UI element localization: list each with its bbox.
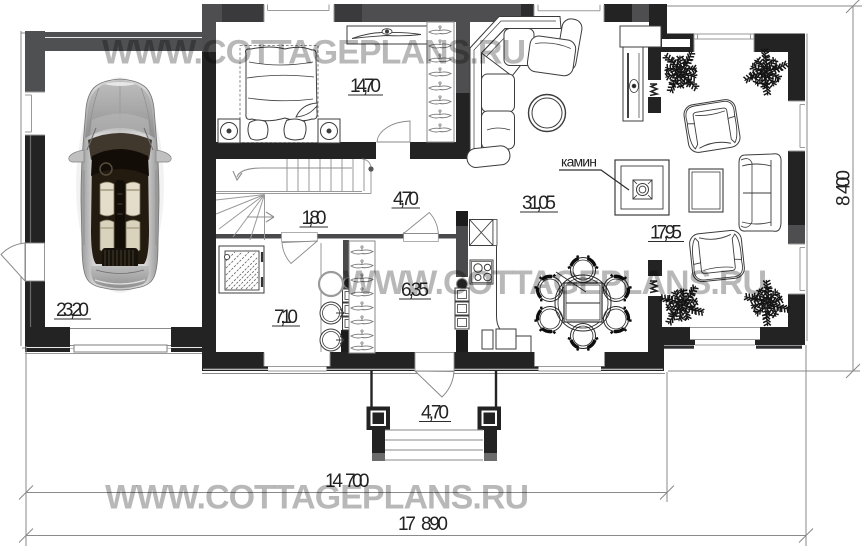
svg-text:7,10: 7,10 [274, 307, 298, 328]
svg-text:17: 17 [398, 514, 416, 535]
svg-text:8: 8 [834, 195, 855, 206]
svg-text:WWW.COTTAGEPLANS.RU: WWW.COTTAGEPLANS.RU [343, 264, 767, 302]
svg-text:4,70: 4,70 [393, 189, 419, 210]
svg-text:1,80: 1,80 [302, 208, 327, 229]
svg-text:23,20: 23,20 [56, 300, 89, 321]
svg-text:400: 400 [834, 170, 855, 194]
svg-text:WWW.COTTAGEPLANS.RU: WWW.COTTAGEPLANS.RU [102, 34, 526, 72]
svg-text:31,05: 31,05 [522, 193, 556, 214]
svg-text:4,70: 4,70 [421, 403, 449, 424]
svg-text:17,95: 17,95 [650, 223, 682, 244]
svg-text:14,70: 14,70 [350, 76, 381, 97]
svg-text:890: 890 [421, 514, 448, 535]
svg-text:WWW.COTTAGEPLANS.RU: WWW.COTTAGEPLANS.RU [105, 479, 529, 517]
svg-text:камин: камин [561, 154, 597, 170]
